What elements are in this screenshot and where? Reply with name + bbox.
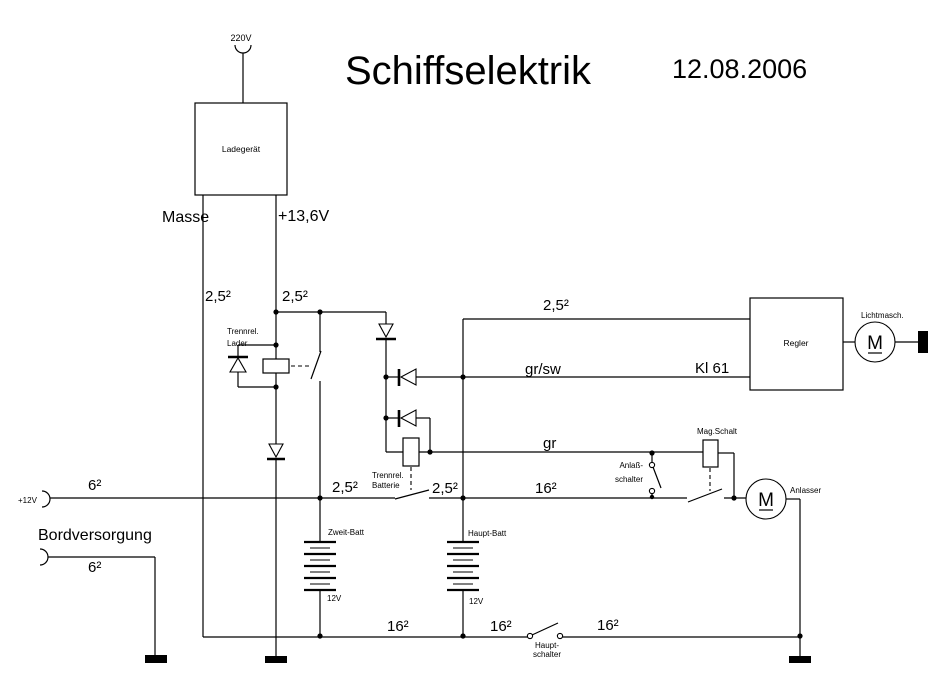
starter-label: Anlasser xyxy=(790,486,821,495)
regulator-label: Regler xyxy=(783,338,808,348)
switch-blade xyxy=(395,490,429,499)
switch-contact-icon xyxy=(649,488,654,493)
switch-blade xyxy=(688,489,722,502)
junction-dot xyxy=(797,633,802,638)
plus136-label: +13,6V xyxy=(278,208,329,225)
wiring-diagram: Schiffselektrik 12.08.2006 220V Ladegerä… xyxy=(0,0,930,674)
masse-label: Masse xyxy=(162,209,209,226)
plus12-label: +12V xyxy=(18,496,38,505)
battery-voltage-label: 12V xyxy=(469,597,484,606)
regulator-unit: Regler xyxy=(750,298,843,390)
junction-dot xyxy=(317,633,322,638)
ac-voltage-label: 220V xyxy=(230,33,251,43)
schematic-page: Schiffselektrik 12.08.2006 220V Ladegerä… xyxy=(0,0,930,674)
junction-dot xyxy=(427,449,432,454)
junction-dot xyxy=(273,309,278,314)
switch-blade xyxy=(311,351,321,379)
ground-rail: 16² 16² 16² Haupt- schalter xyxy=(203,617,800,659)
diode-block: gr/sw Kl 61 xyxy=(376,312,750,452)
junction-dot xyxy=(731,495,736,500)
solenoid-unit: Mag.Schalt xyxy=(688,427,738,502)
switch-blade xyxy=(653,467,661,488)
junction-dot xyxy=(317,309,322,314)
ground-icon xyxy=(145,655,167,663)
board-supply: Bordversorgung 6² xyxy=(38,527,167,663)
diode-icon xyxy=(401,369,416,385)
battery-main-label: Haupt-Batt xyxy=(468,529,507,538)
switch-contact-icon xyxy=(557,633,562,638)
relay-coil xyxy=(263,359,289,373)
starter-unit: M Anlasser xyxy=(746,479,821,663)
wire-gauge-label: 2,5² xyxy=(205,288,231,305)
starter-switch-label1: Anlaß- xyxy=(619,461,643,470)
wire-gauge-label: 16² xyxy=(387,618,409,635)
junction-dot xyxy=(650,495,654,499)
switch-contact-icon xyxy=(527,633,532,638)
page-title: Schiffselektrik xyxy=(345,49,592,93)
charger-label: Ladegerät xyxy=(222,144,261,154)
alternator-unit: Lichtmasch. M xyxy=(843,311,928,362)
battery-second-label: Zweit-Batt xyxy=(328,528,365,537)
relay-lader: Trennrel. Lader xyxy=(227,312,386,542)
wire-gauge-label: 6² xyxy=(88,477,101,494)
engine-block-icon xyxy=(918,331,928,353)
junction-dots xyxy=(273,309,802,638)
diode-icon xyxy=(269,444,283,457)
wire-gauge-label: 16² xyxy=(490,618,512,635)
relay-batterie: Trennrel. Batterie 2,5² 2,5² xyxy=(332,438,458,499)
junction-dot xyxy=(317,495,322,500)
junction-dot xyxy=(273,342,278,347)
ground-icon xyxy=(789,656,811,663)
wire-gauge-label: 2,5² xyxy=(543,297,569,314)
ground-icon xyxy=(265,656,287,663)
junction-dot xyxy=(383,374,388,379)
wire-gauge-label: 2,5² xyxy=(282,288,308,305)
relay-batterie-label2: Batterie xyxy=(372,481,400,490)
switch-contact-icon xyxy=(649,462,654,467)
junction-dot xyxy=(460,495,465,500)
wire-gauge-label: 16² xyxy=(535,480,557,497)
gr-wire-run: gr xyxy=(419,435,703,452)
relay-coil xyxy=(403,438,419,466)
main-switch-label2: schalter xyxy=(533,650,561,659)
kl61-label: Kl 61 xyxy=(695,360,729,377)
wire-gauge-label: 2,5² xyxy=(432,480,458,497)
grsw-label: gr/sw xyxy=(525,361,561,378)
charger-unit: 220V Ladegerät Masse +13,6V 2,5² 2,5² xyxy=(162,33,329,663)
ac-plug-icon xyxy=(235,45,251,53)
battery-voltage-label: 12V xyxy=(327,594,342,603)
diode-icon xyxy=(379,324,393,337)
starter-switch-label2: schalter xyxy=(615,475,643,484)
diode-icon xyxy=(230,358,246,372)
motor-letter: M xyxy=(867,333,883,354)
junction-dot xyxy=(273,384,278,389)
solenoid-coil xyxy=(703,440,718,467)
solenoid-label: Mag.Schalt xyxy=(697,427,738,436)
junction-dot xyxy=(383,415,388,420)
main-switch-label1: Haupt- xyxy=(535,641,559,650)
battery-second: Zweit-Batt 12V xyxy=(304,528,365,637)
junction-dot xyxy=(649,450,654,455)
starter-switch: Anlaß- schalter xyxy=(615,453,661,498)
relay-lader-label2: Lader xyxy=(227,339,248,348)
title-block: Schiffselektrik 12.08.2006 xyxy=(345,49,807,93)
switch-blade xyxy=(532,623,558,635)
junction-dot xyxy=(460,374,465,379)
terminal-icon xyxy=(40,549,48,565)
relay-lader-label1: Trennrel. xyxy=(227,327,259,336)
wire-gauge-label: 6² xyxy=(88,559,101,576)
junction-dot xyxy=(460,633,465,638)
diode-icon xyxy=(401,410,416,426)
board-supply-label: Bordversorgung xyxy=(38,527,152,544)
relay-batterie-label1: Trennrel. xyxy=(372,471,404,480)
battery-main: Haupt-Batt 12V xyxy=(447,529,507,606)
date-label: 12.08.2006 xyxy=(672,54,807,84)
terminal-icon xyxy=(42,491,50,507)
wire-gauge-label: 2,5² xyxy=(332,479,358,496)
alternator-label: Lichtmasch. xyxy=(861,311,904,320)
motor-letter: M xyxy=(758,490,774,511)
gr-label: gr xyxy=(543,435,556,452)
wire-gauge-label: 16² xyxy=(597,617,619,634)
